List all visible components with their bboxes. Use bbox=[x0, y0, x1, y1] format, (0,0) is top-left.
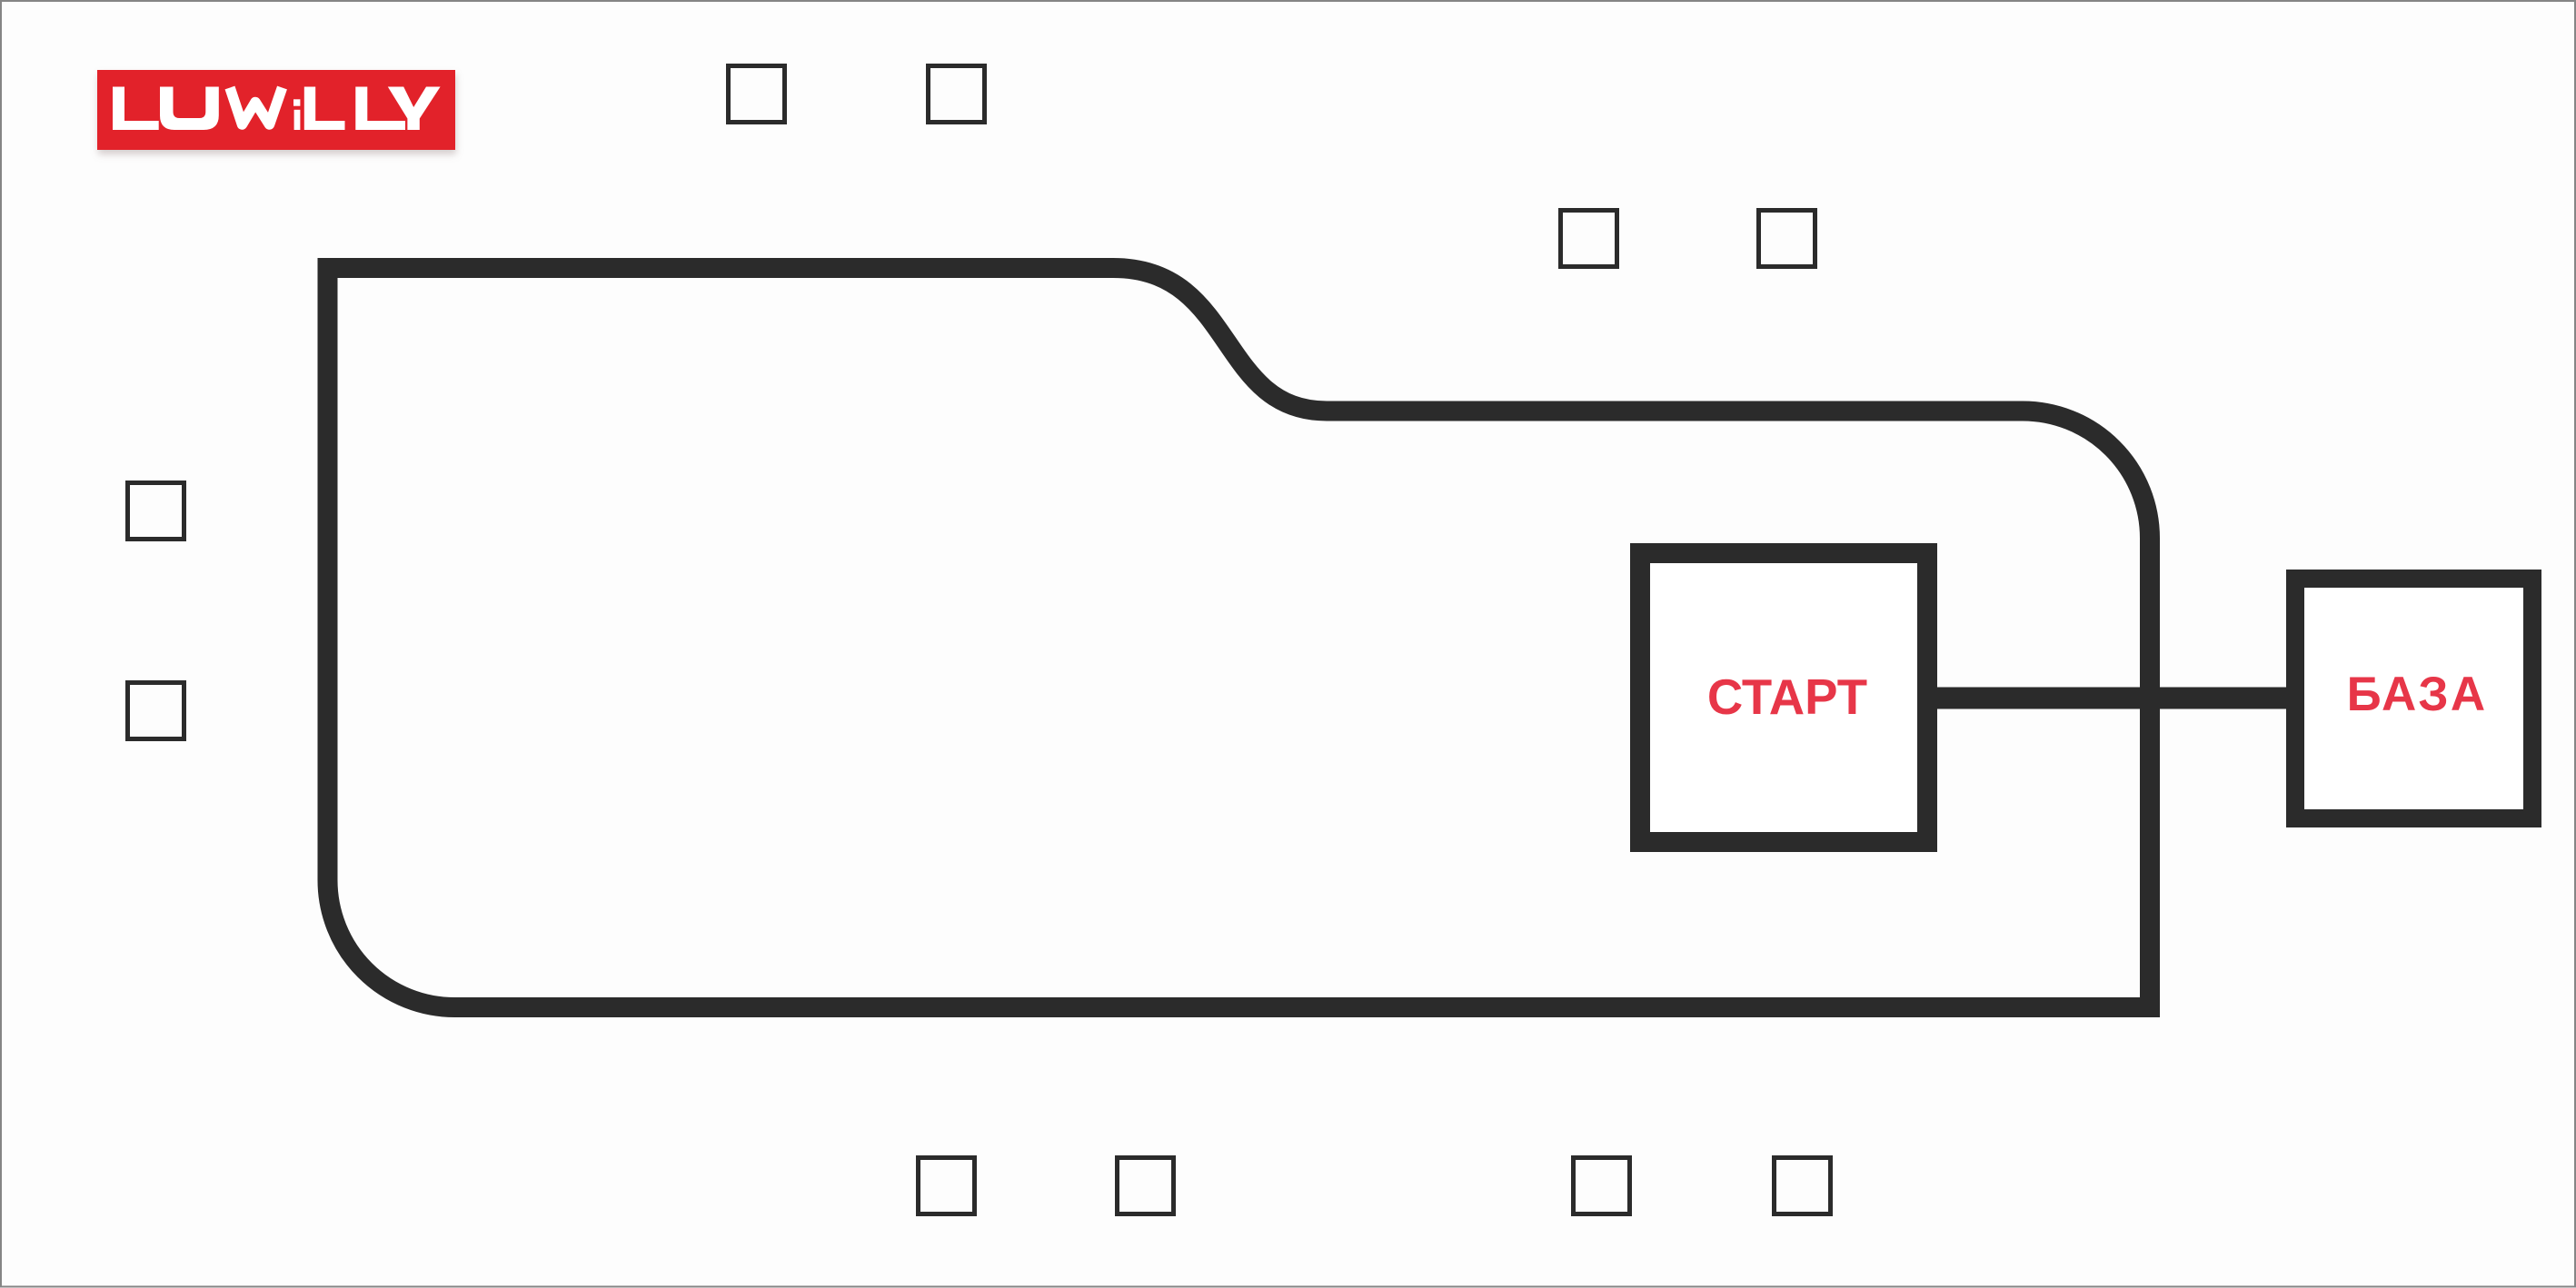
svg-text:СТАРТ: СТАРТ bbox=[1707, 669, 1867, 725]
svg-text:БАЗА: БАЗА bbox=[2347, 668, 2488, 721]
